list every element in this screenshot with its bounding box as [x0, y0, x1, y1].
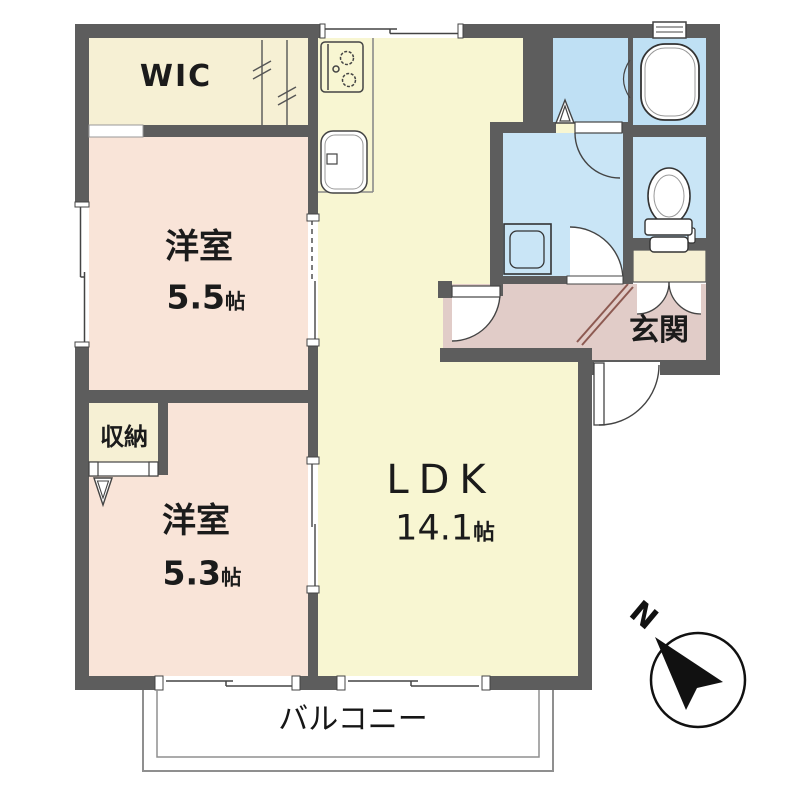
bedroom1-size-unit: 帖 — [225, 290, 245, 314]
wall-door-post — [438, 281, 452, 298]
wall-storage-right — [158, 403, 168, 475]
wall-hall-bottom — [440, 348, 592, 362]
kitchen-window — [320, 24, 463, 38]
entry-door-leaf — [594, 363, 604, 425]
wic-opening — [89, 125, 143, 137]
wall-tub-toilet — [628, 125, 706, 137]
ldk-balcony-door — [337, 676, 490, 690]
bathroom-window — [653, 22, 686, 38]
wall-bottom — [75, 676, 592, 690]
ldk-size-value: 14.1 — [395, 509, 473, 549]
bedroom1-size: 5.5帖 — [167, 281, 246, 314]
bedroom2-balcony-door — [155, 676, 300, 690]
bedroom2-size: 5.3帖 — [163, 557, 242, 590]
wall-center-upper — [308, 38, 318, 215]
bedroom2-label: 洋室 — [162, 504, 230, 538]
wic-label: WIC — [140, 62, 212, 92]
ldk-size-unit: 帖 — [473, 521, 495, 546]
wall-washroom-toilet — [623, 133, 633, 284]
wall-right — [706, 24, 720, 375]
wall-washroom-left — [490, 133, 503, 296]
bathroom-door-leaf — [575, 122, 622, 133]
wall-kitchen-bath — [523, 38, 553, 122]
entrance-label: 玄関 — [629, 316, 689, 346]
washroom-door-leaf — [567, 276, 623, 284]
bedroom2-size-unit: 帖 — [221, 566, 241, 590]
bedroom1-size-value: 5.5 — [167, 278, 225, 317]
ldk-size: 14.1帖 — [395, 512, 495, 547]
floor-plan: WIC 洋室 5.5帖 収納 洋室 5.3帖 LDK 14.1帖 玄関 バルコニ… — [0, 0, 800, 800]
storage-label: 収納 — [100, 425, 148, 449]
kitchen-sink-icon — [321, 131, 367, 193]
ldk-hall-door-leaf — [452, 286, 500, 297]
shoe-cabinet-icon — [633, 250, 706, 282]
bedroom1-sliding-door — [307, 214, 319, 346]
wall-bath-bottom-left — [490, 122, 556, 133]
wall-ldk-right — [578, 348, 592, 690]
bedroom2-size-value: 5.3 — [163, 554, 221, 593]
wall-washroom-bottom — [497, 276, 567, 284]
ldk-label: LDK — [386, 460, 495, 500]
compass — [651, 633, 745, 727]
wall-left — [75, 24, 89, 690]
balcony-label: バルコニー — [278, 705, 427, 735]
floor-plan-drawing — [0, 0, 800, 800]
wall-bath-tub-divider — [628, 38, 633, 122]
bedroom2-sliding-door — [307, 457, 319, 593]
bathtub-icon — [641, 44, 699, 120]
wall-bedroom1-bottom — [75, 390, 318, 403]
bedroom1-label: 洋室 — [165, 230, 233, 264]
bedroom1-window — [75, 202, 89, 347]
wall-wic-bottom — [143, 125, 318, 137]
wall-center-lower — [308, 590, 318, 676]
